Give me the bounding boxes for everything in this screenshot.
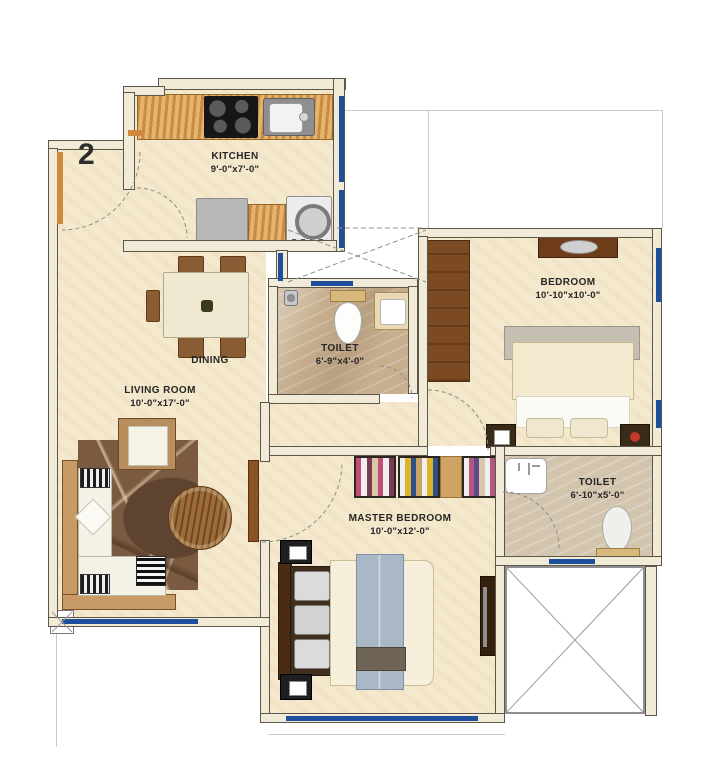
window <box>656 248 661 302</box>
washer-drum <box>295 204 331 240</box>
wall <box>418 228 662 238</box>
wc-tank <box>330 290 366 302</box>
wardrobe <box>426 240 470 382</box>
wall <box>260 540 270 723</box>
master-bedroom-label: MASTER BEDROOM 10'-0"x12'-0" <box>295 512 505 538</box>
wash-basin <box>374 292 410 330</box>
guide-line <box>268 734 505 735</box>
gas-hob <box>204 96 258 138</box>
table-centerpiece <box>201 300 213 312</box>
armchair <box>118 418 176 470</box>
wardrobe-section <box>354 456 396 498</box>
dining-table <box>163 272 249 338</box>
shower-head <box>284 290 298 306</box>
basin-bowl <box>380 299 406 325</box>
armchair-cushion <box>128 426 168 466</box>
pillow <box>526 418 564 438</box>
door-frame <box>128 130 144 136</box>
dining-chair <box>146 290 160 322</box>
wall <box>260 402 270 462</box>
lamp <box>289 546 307 560</box>
room-dims: 10'-10"x10'-0" <box>488 290 648 303</box>
window <box>339 96 344 182</box>
pillow <box>570 418 608 438</box>
toilet2-label: TOILET 6'-10"x5'-0" <box>545 476 650 502</box>
wall <box>495 446 505 723</box>
nightstand <box>486 424 516 448</box>
guide-line <box>345 110 662 111</box>
pillow <box>294 571 330 601</box>
nightstand <box>280 540 312 564</box>
nightstand <box>280 674 312 700</box>
lamp <box>289 681 307 696</box>
wardrobe-section <box>398 456 440 498</box>
living-room-label: LIVING ROOM 10'-0"x17'-0" <box>78 384 242 410</box>
entry-door-frame <box>57 152 63 224</box>
room-name: TOILET <box>272 342 408 356</box>
bed-mattress <box>512 342 634 400</box>
shower-tray <box>505 458 547 494</box>
window <box>656 400 661 428</box>
sofa-back-bottom <box>62 594 176 610</box>
room-dims: 10'-0"x12'-0" <box>295 526 505 539</box>
master-door-leaf <box>248 460 259 542</box>
pillow <box>294 639 330 669</box>
room-dims: 6'-10"x5'-0" <box>545 490 650 503</box>
room-dims: 9'-0"x7'-0" <box>160 164 310 177</box>
tv-screen <box>483 587 487 647</box>
wall <box>490 446 662 456</box>
room-name: TOILET <box>545 476 650 490</box>
wardrobe-section <box>462 456 498 498</box>
room-dims: 6'-9"x4'-0" <box>272 356 408 369</box>
wall <box>268 394 380 404</box>
wall <box>418 236 428 448</box>
guide-line <box>662 110 663 228</box>
wall <box>123 240 337 252</box>
floor-plan: 2 KITCHEN 9'-0"x7'-0" DINING LIVING ROOM… <box>0 0 717 768</box>
master-pillow-band <box>290 566 332 676</box>
sink-faucet <box>299 112 309 122</box>
wardrobe-divider <box>440 456 462 498</box>
guide-line <box>428 110 429 228</box>
refrigerator <box>196 198 248 244</box>
shaft-void <box>505 566 645 714</box>
room-name: DINING <box>162 354 258 368</box>
room-name: BEDROOM <box>488 276 648 290</box>
kitchen-counter-low <box>248 204 286 242</box>
wall <box>268 446 428 456</box>
room-name: MASTER BEDROOM <box>295 512 505 526</box>
bedroom-label: BEDROOM 10'-10"x10'-0" <box>488 276 648 302</box>
blanket-band <box>356 647 406 671</box>
wall <box>123 92 135 190</box>
guide-line <box>56 627 57 747</box>
striped-side-table <box>136 556 166 586</box>
toilet1-label: TOILET 6'-9"x4'-0" <box>272 342 408 368</box>
sofa-back-left <box>62 460 78 608</box>
window <box>339 190 344 248</box>
nightstand <box>620 424 650 448</box>
lamp <box>494 430 510 445</box>
striped-cushion <box>80 468 110 488</box>
dining-label: DINING <box>162 354 258 368</box>
room-name: LIVING ROOM <box>78 384 242 398</box>
master-blanket <box>356 554 404 690</box>
window <box>278 253 283 281</box>
kitchen-sink <box>263 98 315 136</box>
mirror <box>560 240 598 254</box>
round-coffee-table <box>168 486 232 550</box>
kitchen-label: KITCHEN 9'-0"x7'-0" <box>160 150 310 176</box>
wall <box>158 78 346 90</box>
window <box>62 619 198 624</box>
pillow <box>294 605 330 635</box>
sink-basin <box>269 103 303 133</box>
striped-cushion <box>80 574 110 594</box>
window <box>549 559 595 564</box>
decor-item <box>630 432 640 442</box>
unit-number: 2 <box>78 138 95 172</box>
room-dims: 10'-0"x17'-0" <box>78 398 242 411</box>
wall <box>645 566 657 716</box>
wall <box>408 286 418 394</box>
window <box>311 281 353 286</box>
room-name: KITCHEN <box>160 150 310 164</box>
window <box>286 716 478 721</box>
